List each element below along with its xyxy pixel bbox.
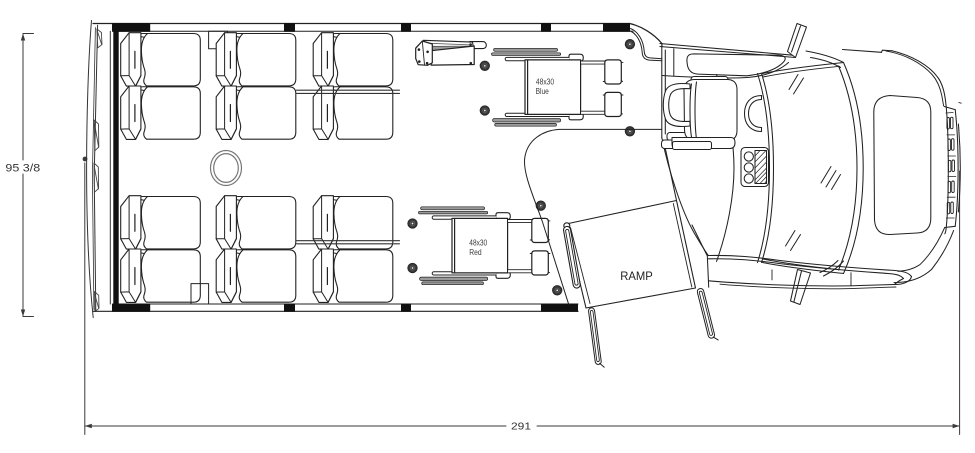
svg-text:RAMP: RAMP — [620, 271, 653, 283]
svg-text:48x30: 48x30 — [536, 77, 555, 86]
svg-text:Red: Red — [469, 248, 481, 257]
svg-text:48x30: 48x30 — [469, 239, 487, 248]
svg-text:Blue: Blue — [536, 87, 550, 96]
svg-text:95 3/8: 95 3/8 — [5, 162, 40, 174]
svg-text:291: 291 — [511, 422, 532, 433]
